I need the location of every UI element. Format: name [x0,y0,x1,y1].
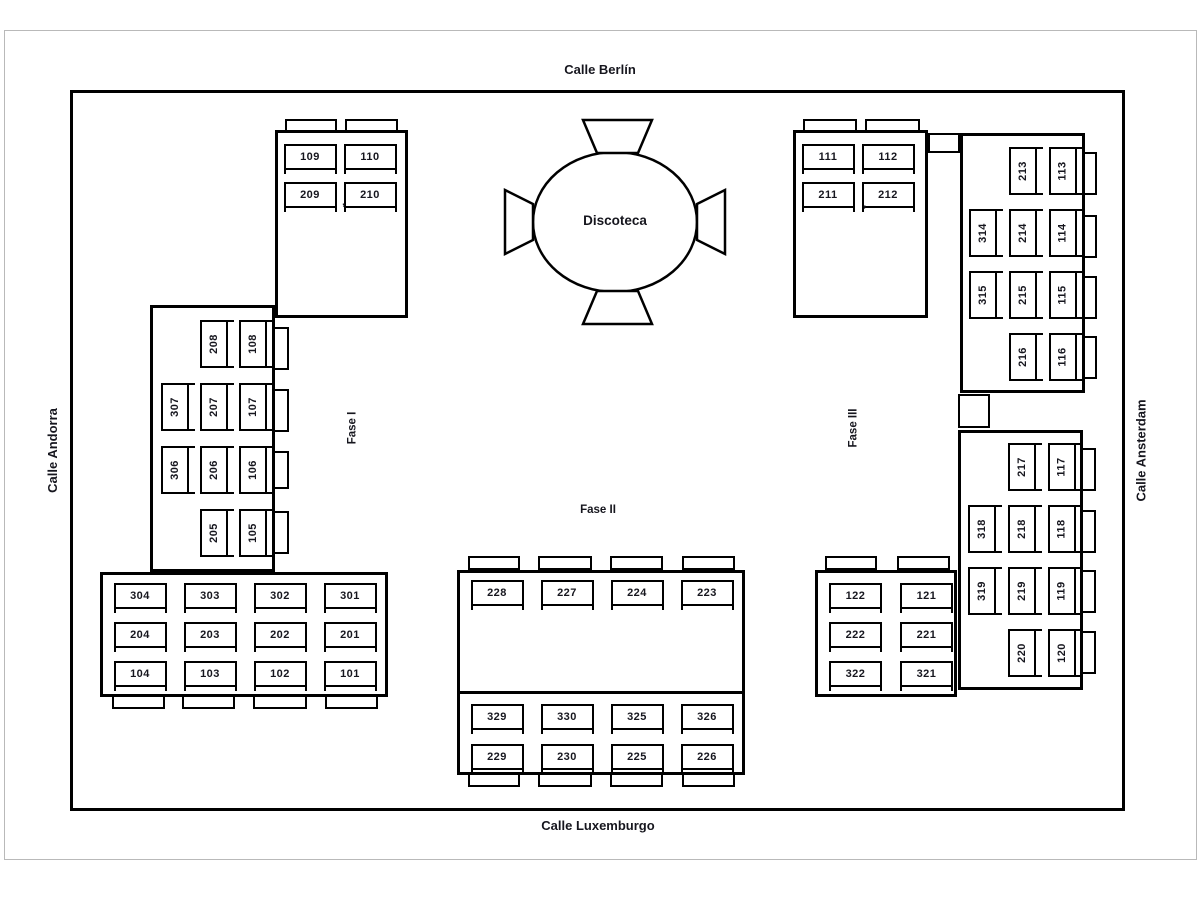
unit-number: 222 [846,629,866,641]
unit-box: 322 [829,661,882,687]
empty-slot [963,140,1003,202]
unit-box: 122 [829,583,882,609]
empty-slot [155,501,194,564]
unit-box: 229 [471,744,524,770]
unit-number: 103 [200,668,220,680]
unit-box: 301 [324,583,377,609]
unit-cell: 229 [462,737,532,777]
unit-cell: 108 [233,312,272,375]
unit-box: 207 [200,383,228,431]
unit-number: 224 [627,587,647,599]
unit-number: 223 [697,587,717,599]
unit-number: 110 [360,151,379,163]
discoteca-door-left [505,190,533,254]
unit-cell: 222 [820,615,891,654]
unit-box: 321 [900,661,953,687]
unit-number: 107 [246,397,258,417]
unit-box: 223 [681,580,734,606]
unit-cell: 224 [602,574,672,612]
unit-box: 118 [1048,505,1076,553]
unit-box: 219 [1008,567,1036,615]
unit-cell: 213 [1003,140,1043,202]
units-right-wing-upper: 213113314214114315215115216116 [963,140,1083,388]
unit-box: 117 [1048,443,1076,491]
unit-number: 109 [300,151,320,163]
unit-box: 206 [200,446,228,494]
unit-number: 322 [846,668,866,680]
phase-label-fase-3: Fase III [831,385,875,470]
unit-number: 306 [168,460,180,480]
unit-box: 205 [200,509,228,557]
unit-number: 119 [1056,581,1068,600]
street-label-west-text: Calle Andorra [45,408,60,493]
empty-slot [963,326,1003,388]
unit-box: 104 [114,661,167,687]
unit-cell: 115 [1043,264,1083,326]
unit-box: 221 [900,622,953,648]
units-bottom-right: 122121222221322321 [820,576,962,693]
unit-number: 115 [1057,285,1069,304]
unit-cell: 201 [315,615,385,654]
unit-cell: 110 [340,138,400,176]
unit-number: 302 [270,590,290,602]
unit-number: 216 [1017,347,1029,367]
unit-cell: 307 [155,375,194,438]
phase-label-fase-1: Fase I [330,385,374,470]
unit-cell: 214 [1003,202,1043,264]
unit-box: 211 [802,182,855,208]
phase-label-fase-2: Fase II [548,504,648,516]
unit-box: 204 [114,622,167,648]
street-label-south: Calle Luxemburgo [478,818,718,833]
unit-cell: 202 [245,615,315,654]
unit-number: 211 [818,189,837,201]
unit-cell: 207 [194,375,233,438]
connector-top-right [928,133,960,153]
unit-cell: 103 [175,654,245,693]
unit-box: 120 [1048,629,1076,677]
unit-cell: 219 [1002,560,1042,622]
unit-number: 202 [270,629,290,641]
units-center-lower: 329330325326229230225226 [462,697,742,777]
unit-number: 104 [130,668,150,680]
discoteca-door-top [583,120,652,153]
units-top-left: 109110209210 [280,138,400,214]
unit-box: 105 [239,509,267,557]
unit-box: 109 [284,144,337,170]
unit-cell: 102 [245,654,315,693]
unit-number: 315 [977,285,989,305]
tick-mark-left: ’ [342,201,358,215]
unit-box: 226 [681,744,734,770]
unit-box: 214 [1009,209,1037,257]
phase-label-fase-3-text: Fase III [847,408,859,447]
unit-number: 206 [207,460,219,480]
unit-box: 315 [969,271,997,319]
unit-box: 224 [611,580,664,606]
unit-cell: 306 [155,438,194,501]
unit-cell: 113 [1043,140,1083,202]
empty-slot [962,622,1002,684]
unit-box: 227 [541,580,594,606]
unit-number: 106 [246,460,258,480]
unit-number: 111 [819,151,838,163]
street-label-east: Calle Ansterdam [1119,368,1163,533]
unit-number: 209 [300,189,320,201]
unit-cell: 204 [105,615,175,654]
unit-box: 330 [541,704,594,730]
unit-cell: 228 [462,574,532,612]
unit-number: 330 [557,711,577,723]
unit-box: 306 [161,446,189,494]
unit-cell: 318 [962,498,1002,560]
unit-number: 303 [200,590,220,602]
unit-box: 116 [1049,333,1077,381]
site-plan: Calle Berlín Calle Luxemburgo Calle Ando… [0,0,1200,900]
unit-cell: 114 [1043,202,1083,264]
unit-cell: 325 [602,697,672,737]
unit-cell: 120 [1042,622,1082,684]
unit-cell: 301 [315,576,385,615]
unit-box: 329 [471,704,524,730]
unit-box: 303 [184,583,237,609]
unit-box: 304 [114,583,167,609]
discoteca-door-bottom [583,291,652,324]
unit-box: 325 [611,704,664,730]
discoteca-door-right [697,190,725,254]
unit-number: 227 [557,587,577,599]
unit-box: 215 [1009,271,1037,319]
unit-number: 101 [340,668,360,680]
unit-cell: 208 [194,312,233,375]
units-right-wing-lower: 217117318218118319219119220120 [962,436,1082,684]
unit-number: 210 [360,189,380,201]
unit-number: 214 [1017,223,1029,243]
unit-cell: 319 [962,560,1002,622]
unit-box: 302 [254,583,307,609]
units-left-wing: 208108307207107306206106205105 [155,312,272,564]
unit-cell: 315 [963,264,1003,326]
unit-box: 216 [1009,333,1037,381]
unit-cell: 122 [820,576,891,615]
unit-number: 118 [1056,519,1068,538]
unit-number: 219 [1016,581,1028,601]
unit-number: 301 [340,590,360,602]
unit-number: 318 [976,519,988,539]
unit-box: 113 [1049,147,1077,195]
empty-slot [962,436,1002,498]
unit-cell: 314 [963,202,1003,264]
unit-box: 103 [184,661,237,687]
unit-number: 228 [487,587,507,599]
unit-number: 113 [1057,161,1069,180]
unit-number: 326 [697,711,717,723]
unit-cell: 121 [891,576,962,615]
unit-cell: 303 [175,576,245,615]
units-center-upper: 228227224223 [462,574,742,612]
unit-number: 321 [917,668,937,680]
street-label-east-text: Calle Ansterdam [1134,399,1149,501]
street-label-west: Calle Andorra [30,368,74,533]
unit-box: 230 [541,744,594,770]
unit-box: 202 [254,622,307,648]
unit-number: 220 [1016,643,1028,663]
unit-cell: 112 [858,138,918,176]
unit-box: 318 [968,505,996,553]
unit-box: 121 [900,583,953,609]
unit-cell: 321 [891,654,962,693]
unit-box: 217 [1008,443,1036,491]
street-label-north: Calle Berlín [480,62,720,77]
unit-box: 218 [1008,505,1036,553]
unit-box: 119 [1048,567,1076,615]
unit-number: 105 [246,523,258,543]
unit-box: 220 [1008,629,1036,677]
discoteca-label: Discoteca [545,213,685,228]
units-top-right: 111112211212 [798,138,918,214]
unit-cell: 302 [245,576,315,615]
unit-cell: 209 [280,176,340,214]
unit-number: 329 [487,711,507,723]
unit-number: 325 [627,711,647,723]
unit-box: 209 [284,182,337,208]
unit-cell: 322 [820,654,891,693]
unit-box: 307 [161,383,189,431]
unit-cell: 119 [1042,560,1082,622]
unit-cell: 304 [105,576,175,615]
unit-cell: 106 [233,438,272,501]
unit-cell: 225 [602,737,672,777]
unit-cell: 218 [1002,498,1042,560]
unit-cell: 326 [672,697,742,737]
unit-cell: 118 [1042,498,1082,560]
unit-number: 218 [1016,519,1028,539]
unit-number: 212 [878,189,898,201]
unit-number: 207 [207,397,219,417]
unit-number: 213 [1017,161,1029,181]
unit-number: 225 [627,751,647,763]
unit-cell: 203 [175,615,245,654]
unit-number: 314 [977,223,989,243]
unit-cell: 220 [1002,622,1042,684]
unit-number: 229 [487,751,507,763]
unit-box: 101 [324,661,377,687]
unit-box: 208 [200,320,228,368]
units-bottom-left: 304303302301204203202201104103102101 [105,576,385,693]
unit-number: 204 [130,629,150,641]
unit-box: 213 [1009,147,1037,195]
unit-cell: 116 [1043,326,1083,388]
unit-number: 112 [878,151,897,163]
unit-cell: 111 [798,138,858,176]
unit-cell: 223 [672,574,742,612]
unit-box: 314 [969,209,997,257]
unit-box: 111 [802,144,855,170]
unit-box: 112 [862,144,915,170]
building-center-divider [457,691,745,694]
unit-cell: 117 [1042,436,1082,498]
unit-cell: 205 [194,501,233,564]
unit-cell: 216 [1003,326,1043,388]
unit-cell: 227 [532,574,602,612]
unit-box: 228 [471,580,524,606]
unit-box: 222 [829,622,882,648]
unit-box: 106 [239,446,267,494]
unit-box: 319 [968,567,996,615]
unit-cell: 230 [532,737,602,777]
unit-number: 203 [200,629,220,641]
unit-number: 108 [246,334,258,354]
unit-cell: 206 [194,438,233,501]
unit-cell: 107 [233,375,272,438]
unit-box: 225 [611,744,664,770]
unit-number: 215 [1017,285,1029,305]
unit-cell: 221 [891,615,962,654]
unit-number: 208 [207,334,219,354]
tick-mark-right: ’ [863,203,879,217]
unit-number: 117 [1056,457,1068,476]
unit-number: 307 [168,397,180,417]
unit-number: 114 [1057,223,1069,242]
unit-number: 116 [1057,347,1069,366]
unit-number: 319 [976,581,988,601]
unit-box: 108 [239,320,267,368]
unit-number: 121 [917,590,937,602]
unit-box: 110 [344,144,397,170]
unit-number: 122 [846,590,866,602]
unit-cell: 211 [798,176,858,214]
unit-cell: 105 [233,501,272,564]
unit-number: 226 [697,751,717,763]
unit-number: 304 [130,590,150,602]
unit-cell: 104 [105,654,175,693]
unit-number: 221 [917,629,937,641]
unit-cell: 109 [280,138,340,176]
unit-number: 102 [270,668,290,680]
unit-cell: 226 [672,737,742,777]
unit-box: 102 [254,661,307,687]
unit-box: 114 [1049,209,1077,257]
unit-box: 326 [681,704,734,730]
unit-number: 201 [340,629,360,641]
unit-box: 201 [324,622,377,648]
phase-label-fase-1-text: Fase I [346,411,358,444]
connector-right-wings [958,394,990,428]
unit-box: 115 [1049,271,1077,319]
unit-number: 230 [557,751,577,763]
unit-box: 107 [239,383,267,431]
unit-cell: 329 [462,697,532,737]
unit-cell: 217 [1002,436,1042,498]
unit-box: 203 [184,622,237,648]
unit-cell: 101 [315,654,385,693]
empty-slot [155,312,194,375]
unit-number: 217 [1016,457,1028,477]
unit-cell: 330 [532,697,602,737]
unit-cell: 215 [1003,264,1043,326]
unit-number: 205 [207,523,219,543]
unit-number: 120 [1056,643,1068,663]
